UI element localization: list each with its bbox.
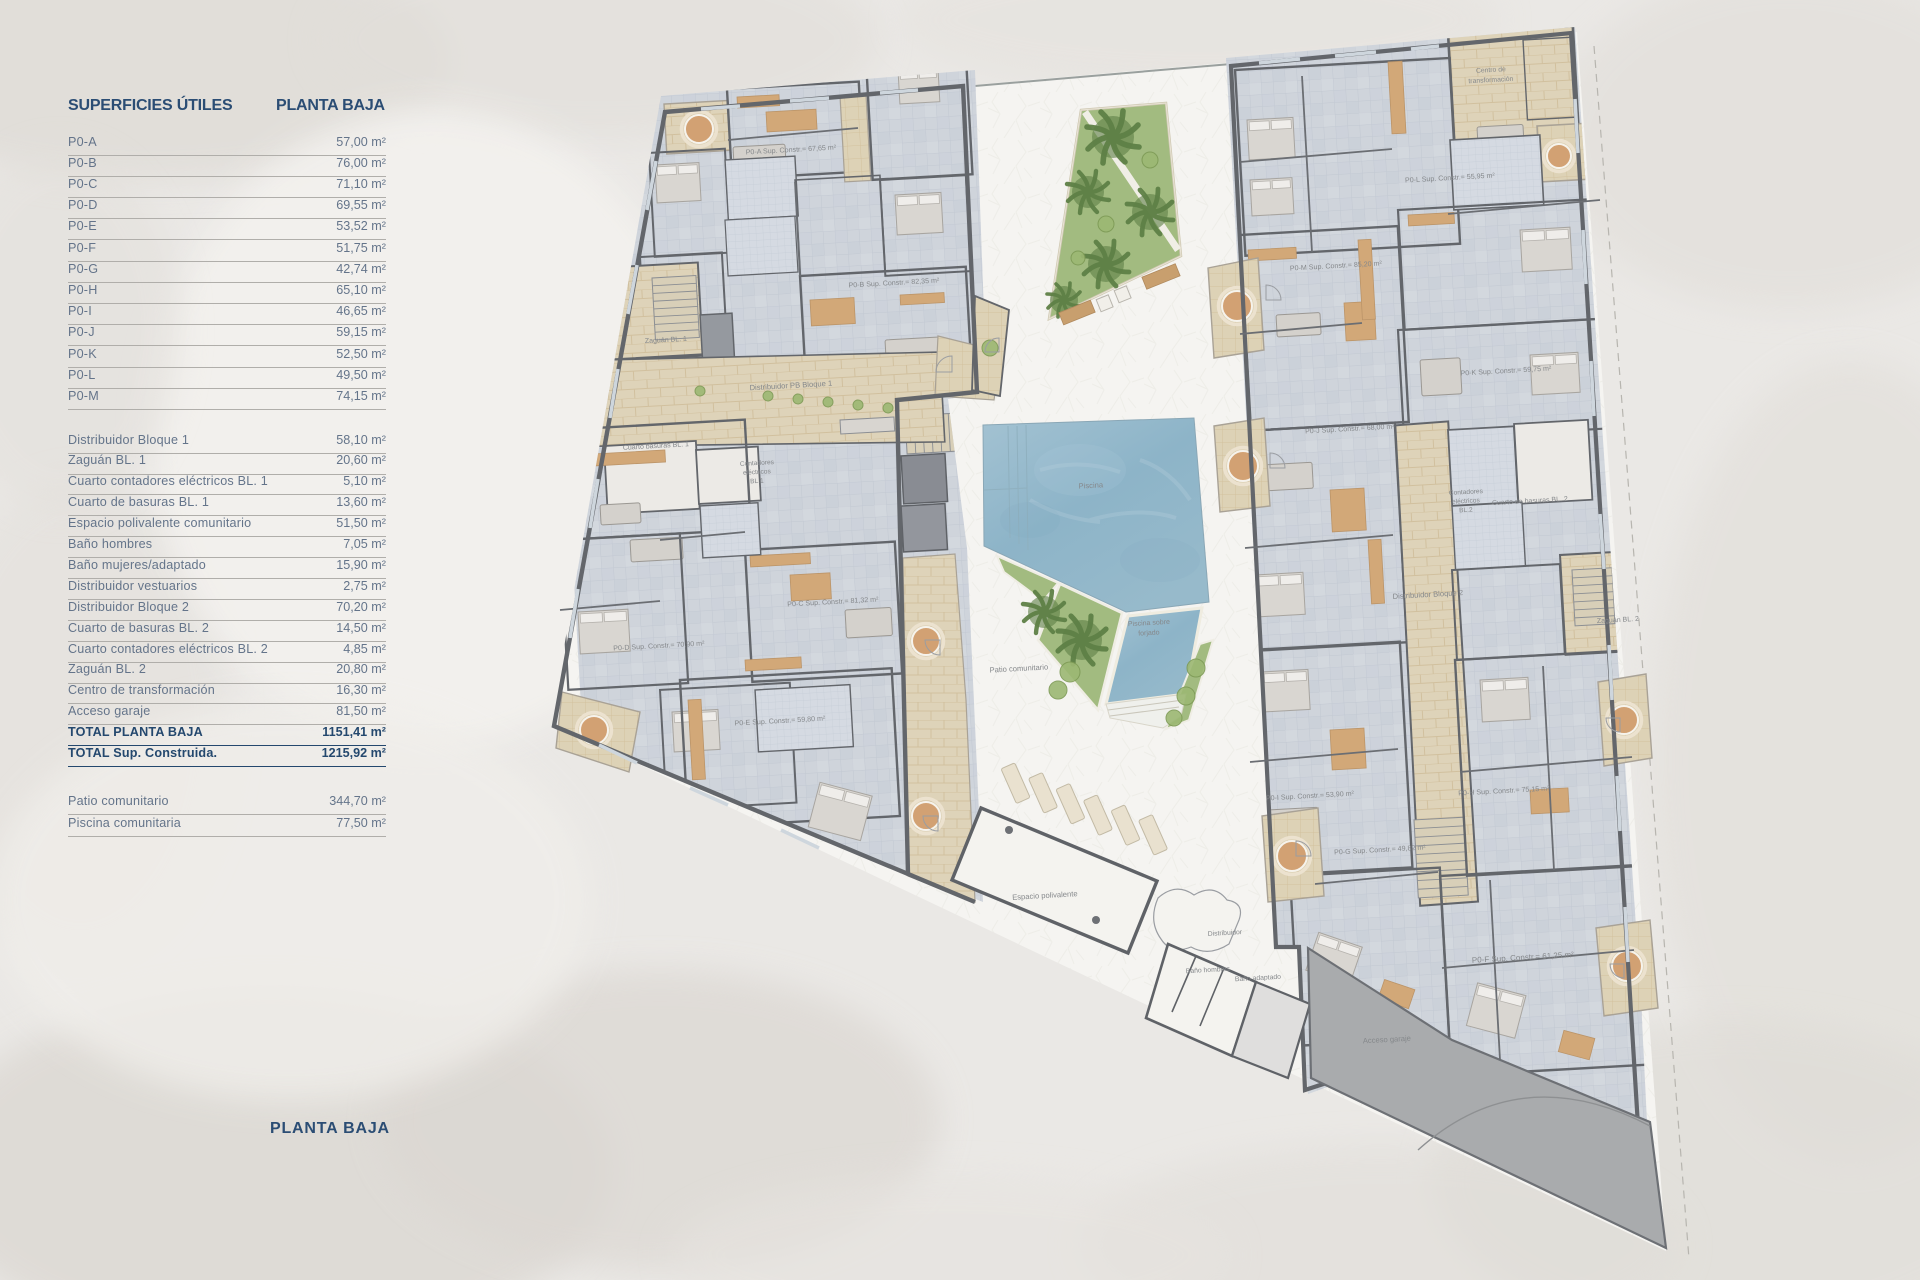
svg-text:BL.1: BL.1 [750, 478, 764, 486]
svg-text:BL.2: BL.2 [1459, 507, 1473, 515]
svg-text:Piscina: Piscina [1078, 480, 1104, 490]
svg-text:forjado: forjado [1138, 629, 1160, 637]
